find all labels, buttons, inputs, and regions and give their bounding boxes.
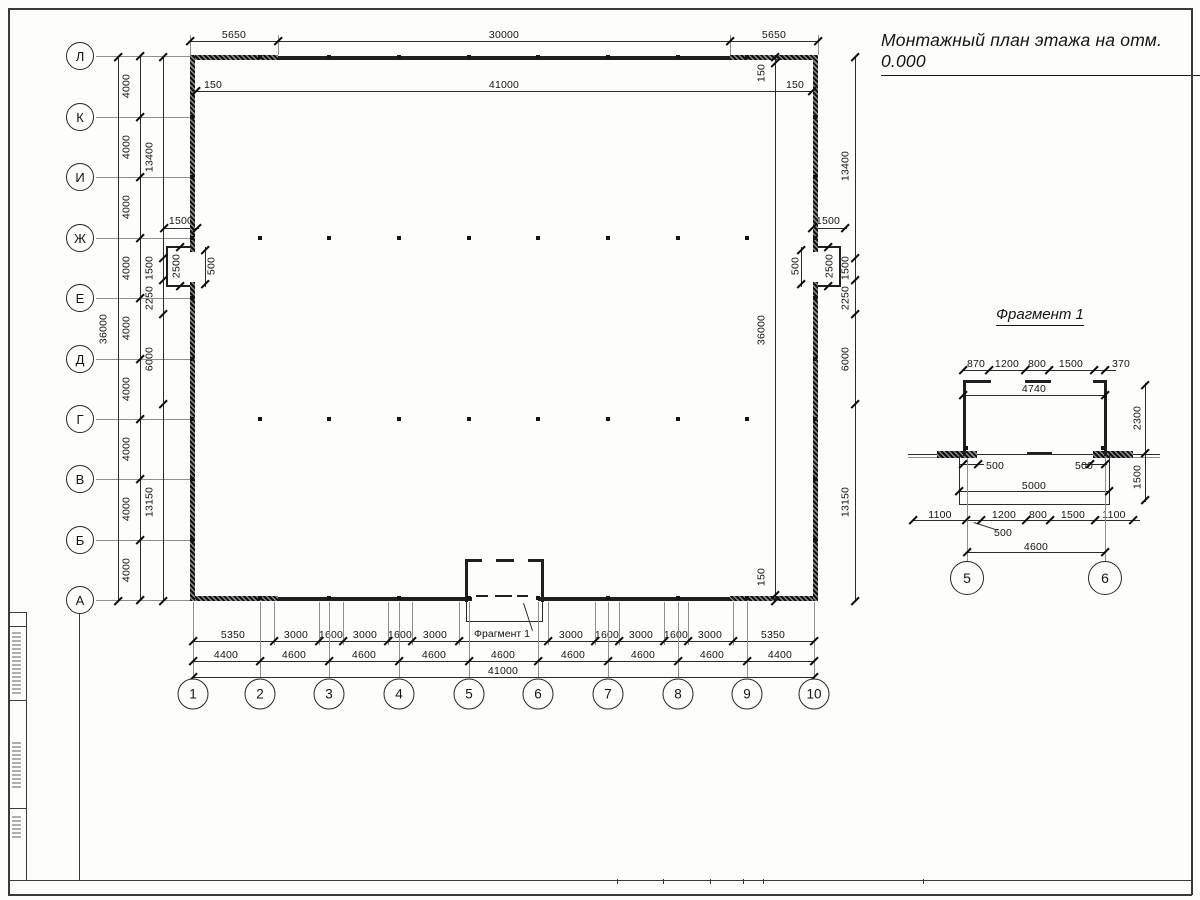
dim-label: 500 — [986, 460, 1004, 472]
dim-line — [260, 602, 261, 677]
dim-line — [190, 55, 195, 252]
axis-label: А — [76, 593, 85, 608]
axis-circle-row: Б — [66, 526, 94, 554]
dim-line — [96, 177, 190, 178]
column-dot — [813, 296, 817, 300]
column-dot — [327, 236, 331, 240]
dim-line — [8, 700, 26, 701]
dim-line — [96, 238, 190, 239]
dim-label: 1500 — [1133, 465, 1144, 489]
dim-label: 1600 — [664, 629, 688, 641]
dim-line — [163, 57, 164, 601]
axis-circle-row: Е — [66, 284, 94, 312]
dim-label: 3000 — [698, 629, 722, 641]
dim-label: 5650 — [222, 29, 246, 41]
axis-circle-col: 3 — [314, 679, 345, 710]
column-dot — [606, 55, 610, 59]
column-dot — [397, 596, 401, 600]
dim-line — [1145, 383, 1146, 502]
dim-line — [190, 41, 818, 42]
dim-label: 4600 — [700, 649, 724, 661]
dim-label: 3000 — [423, 629, 447, 641]
dim-line — [963, 395, 1105, 396]
column-dot — [190, 417, 194, 421]
column-dot — [745, 236, 749, 240]
dim-label: 4600 — [561, 649, 585, 661]
dim-label: 150 — [786, 79, 804, 91]
axis-label: 7 — [604, 687, 612, 702]
dim-line — [855, 57, 856, 601]
dim-label: 1200 — [995, 358, 1019, 370]
column-dot — [536, 417, 540, 421]
axis-label: Л — [76, 49, 85, 64]
dim-line — [399, 602, 400, 677]
axis-label: 2 — [256, 687, 264, 702]
dim-label: 36000 — [757, 315, 768, 345]
dim-line — [542, 601, 543, 622]
dim-label: 13400 — [841, 151, 852, 181]
dim-label: 4740 — [1022, 383, 1046, 395]
column-dot — [813, 175, 817, 179]
column-dot — [258, 417, 262, 421]
dim-line — [329, 602, 330, 677]
column-dot — [676, 596, 680, 600]
column-dot — [397, 236, 401, 240]
dim-label: 5350 — [221, 629, 245, 641]
column-dot — [327, 55, 331, 59]
dim-line — [538, 597, 730, 601]
axis-circle-col: 1 — [178, 679, 209, 710]
column-dot — [190, 175, 194, 179]
axis-circle-col: 7 — [593, 679, 624, 710]
column-dot — [745, 55, 749, 59]
dim-line — [278, 597, 472, 601]
dim-label: 1600 — [595, 629, 619, 641]
axis-label: 6 — [1101, 570, 1109, 586]
dim-tick — [114, 597, 123, 606]
dim-label: 13150 — [841, 487, 852, 517]
dim-line — [937, 451, 977, 458]
dim-label: 4600 — [631, 649, 655, 661]
column-dot — [327, 596, 331, 600]
dim-line — [663, 879, 664, 884]
dim-tick — [1141, 496, 1150, 505]
dim-line — [469, 602, 470, 677]
dim-line — [8, 8, 10, 895]
axis-label: 3 — [325, 687, 333, 702]
dim-label: 150 — [204, 79, 222, 91]
dim-line — [967, 458, 968, 563]
dim-line — [278, 56, 730, 60]
column-dot — [467, 55, 471, 59]
dim-label: 3000 — [629, 629, 653, 641]
dim-line — [775, 57, 776, 601]
dim-label: 1500 — [145, 256, 156, 280]
dim-line — [763, 879, 764, 884]
dim-label: 3000 — [559, 629, 583, 641]
axis-circle-row: А — [66, 586, 94, 614]
dim-line — [959, 491, 1109, 492]
dim-label: 13150 — [145, 487, 156, 517]
axis-label: Ж — [74, 231, 86, 246]
dim-label: 870 — [967, 358, 985, 370]
stamp-text-smudge — [12, 814, 21, 838]
dim-label: 3000 — [353, 629, 377, 641]
dim-label: 370 — [1112, 358, 1130, 370]
dim-line — [26, 612, 27, 881]
stamp-text-smudge — [12, 742, 21, 788]
dim-line — [959, 455, 960, 505]
axis-label: Д — [76, 352, 85, 367]
column-dot — [536, 236, 540, 240]
axis-circle-col: 9 — [732, 679, 763, 710]
dim-tick — [201, 280, 210, 289]
column-dot — [676, 236, 680, 240]
dim-line — [1191, 8, 1193, 895]
column-dot — [536, 596, 540, 600]
dim-label: 2300 — [1133, 406, 1144, 430]
axis-circle-row: К — [66, 103, 94, 131]
dim-line — [541, 559, 544, 602]
column-dot — [536, 55, 540, 59]
column-dot — [467, 236, 471, 240]
column-dot — [190, 357, 194, 361]
dim-label: 4000 — [122, 135, 133, 159]
dim-line — [190, 282, 195, 601]
dim-line — [710, 879, 711, 884]
dim-label: 1500 — [1059, 358, 1083, 370]
dim-line — [1093, 451, 1133, 458]
dim-line — [1132, 457, 1160, 458]
axis-label: 5 — [963, 570, 971, 586]
dim-line — [495, 595, 512, 597]
dim-label: 4600 — [352, 649, 376, 661]
dim-label: 1500 — [841, 256, 852, 280]
dim-label: 41000 — [489, 79, 519, 91]
dim-line — [193, 55, 278, 60]
column-dot — [813, 477, 817, 481]
axis-label: Е — [76, 291, 85, 306]
dim-label: 4600 — [491, 649, 515, 661]
axis-circle-col: 8 — [663, 679, 694, 710]
dim-line — [476, 595, 488, 597]
dim-tick — [159, 597, 168, 606]
dim-line — [1027, 452, 1052, 454]
dim-label: 4000 — [122, 437, 133, 461]
column-dot — [190, 477, 194, 481]
fragment-title: Фрагмент 1 — [996, 306, 1084, 326]
column-dot — [467, 596, 471, 600]
dim-label: 3000 — [284, 629, 308, 641]
column-dot — [397, 417, 401, 421]
dim-line — [79, 607, 80, 881]
dim-line — [193, 596, 278, 601]
dim-line — [96, 56, 190, 57]
dim-line — [140, 57, 141, 601]
axis-circle-row: Ж — [66, 224, 94, 252]
axis-label: 9 — [743, 687, 751, 702]
axis-label: 5 — [465, 687, 473, 702]
fragment-callout: Фрагмент 1 — [474, 628, 530, 640]
dim-line — [8, 894, 1192, 896]
dim-line — [813, 282, 818, 601]
axis-circle-row: В — [66, 465, 94, 493]
dim-label: 41000 — [488, 665, 518, 677]
dim-label: 5350 — [761, 629, 785, 641]
dim-line — [96, 540, 190, 541]
dim-line — [908, 457, 938, 458]
column-dot — [745, 596, 749, 600]
column-dot — [606, 596, 610, 600]
dim-label: 4600 — [422, 649, 446, 661]
dim-line — [8, 612, 26, 613]
dim-line — [96, 298, 190, 299]
dim-label: 1500 — [816, 215, 840, 227]
axis-label: И — [75, 170, 84, 185]
column-dot — [813, 538, 817, 542]
dim-line — [496, 559, 514, 562]
axis-circle-col: 5 — [950, 561, 984, 595]
dim-line — [1105, 458, 1106, 563]
dim-label: 4000 — [122, 256, 133, 280]
dim-label: 800 — [1028, 358, 1046, 370]
dim-label: 1600 — [319, 629, 343, 641]
dim-label: 30000 — [489, 29, 519, 41]
axis-label: 10 — [806, 687, 821, 702]
dim-line — [96, 419, 190, 420]
axis-label: 4 — [395, 687, 403, 702]
dim-line — [193, 661, 814, 662]
axis-label: В — [76, 472, 85, 487]
column-dot — [190, 538, 194, 542]
axis-label: Б — [76, 533, 85, 548]
dim-line — [466, 601, 467, 622]
stamp-text-smudge — [12, 632, 21, 694]
dim-line — [813, 55, 818, 252]
column-dot — [813, 357, 817, 361]
dim-tick — [797, 280, 806, 289]
column-dot — [190, 296, 194, 300]
dim-line — [963, 380, 991, 383]
column-dot — [190, 236, 194, 240]
column-dot — [397, 55, 401, 59]
column-dot — [813, 115, 817, 119]
dim-label: 500 — [791, 257, 802, 275]
dim-line — [743, 879, 744, 884]
dim-line — [959, 504, 1109, 505]
dim-line — [608, 602, 609, 677]
dim-line — [617, 879, 618, 884]
axis-label: 8 — [674, 687, 682, 702]
dim-label: 1600 — [388, 629, 412, 641]
column-dot — [190, 115, 194, 119]
column-dot — [258, 55, 262, 59]
dim-line — [166, 246, 168, 287]
dim-line — [466, 621, 543, 622]
column-dot — [676, 417, 680, 421]
dim-line — [678, 602, 679, 677]
dim-line — [839, 246, 841, 287]
column-dot — [467, 417, 471, 421]
dim-line — [118, 57, 119, 601]
dim-label: 4000 — [122, 316, 133, 340]
dim-line — [96, 359, 190, 360]
dim-tick — [841, 224, 850, 233]
dim-line — [96, 117, 190, 118]
dim-label: 150 — [757, 568, 768, 586]
axis-circle-col: 2 — [245, 679, 276, 710]
dim-line — [193, 677, 814, 678]
dim-label: 500 — [207, 257, 218, 275]
dim-line — [466, 559, 482, 562]
axis-circle-col: 6 — [1088, 561, 1122, 595]
dim-line — [538, 602, 539, 677]
dim-line — [8, 808, 26, 809]
dim-line — [196, 91, 812, 92]
dim-tick — [851, 597, 860, 606]
dim-label: 4000 — [122, 195, 133, 219]
axis-circle-col: 4 — [384, 679, 415, 710]
dim-line — [8, 880, 1192, 881]
axis-circle-col: 6 — [523, 679, 554, 710]
column-dot — [327, 417, 331, 421]
axis-label: 6 — [534, 687, 542, 702]
column-dot — [258, 236, 262, 240]
dim-line — [1025, 380, 1051, 383]
dim-label: 6000 — [841, 347, 852, 371]
dim-label: 5650 — [762, 29, 786, 41]
dim-label: 4400 — [214, 649, 238, 661]
dim-line — [96, 600, 190, 601]
axis-circle-col: 5 — [454, 679, 485, 710]
dim-label: 4000 — [122, 74, 133, 98]
dim-label: 150 — [757, 64, 768, 82]
drawing-sheet: Монтажный план этажа на отм. 0.000 Фрагм… — [0, 0, 1200, 900]
column-dot — [745, 417, 749, 421]
axis-circle-row: Л — [66, 42, 94, 70]
axis-label: 1 — [189, 687, 197, 702]
dim-line — [8, 8, 1192, 10]
dim-label: 4000 — [122, 377, 133, 401]
axis-circle-row: И — [66, 163, 94, 191]
column-dot — [813, 417, 817, 421]
column-dot — [258, 596, 262, 600]
dim-label: 2500 — [825, 254, 836, 278]
axis-circle-col: 10 — [799, 679, 830, 710]
dim-line — [1109, 455, 1110, 505]
axis-circle-row: Г — [66, 405, 94, 433]
column-dot — [606, 417, 610, 421]
dim-line — [96, 479, 190, 480]
dim-label: 4000 — [122, 497, 133, 521]
drawing-title: Монтажный план этажа на отм. 0.000 — [881, 30, 1200, 76]
dim-label: 13400 — [145, 142, 156, 172]
dim-label: 2250 — [841, 286, 852, 310]
dim-line — [967, 552, 1105, 553]
dim-label: 4400 — [768, 649, 792, 661]
axis-label: К — [76, 110, 84, 125]
dim-label: 36000 — [99, 314, 110, 344]
dim-line — [923, 879, 924, 884]
leader-line — [523, 603, 533, 631]
dim-line — [8, 626, 26, 627]
dim-label: 4600 — [282, 649, 306, 661]
column-dot — [1101, 446, 1105, 450]
axis-label: Г — [76, 412, 83, 427]
dim-line — [193, 641, 814, 642]
column-dot — [606, 236, 610, 240]
dim-label: 2500 — [172, 254, 183, 278]
column-dot — [813, 236, 817, 240]
dim-line — [517, 595, 528, 597]
dim-line — [747, 602, 748, 677]
column-dot — [676, 55, 680, 59]
axis-circle-row: Д — [66, 345, 94, 373]
dim-label: 4000 — [122, 558, 133, 582]
column-dot — [964, 446, 968, 450]
